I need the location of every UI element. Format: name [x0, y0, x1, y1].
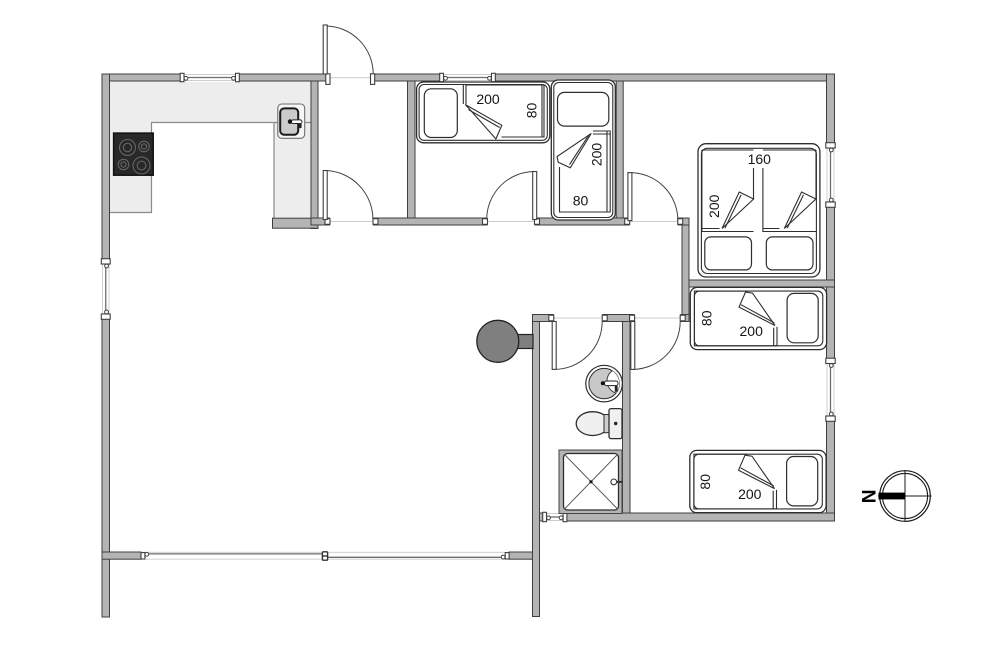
- svg-text:80: 80: [523, 103, 539, 119]
- svg-text:200: 200: [706, 194, 722, 218]
- svg-text:80: 80: [573, 193, 589, 209]
- svg-text:200: 200: [588, 143, 604, 167]
- svg-text:80: 80: [697, 474, 713, 490]
- svg-text:200: 200: [476, 91, 500, 107]
- svg-text:200: 200: [740, 323, 764, 339]
- svg-text:160: 160: [748, 151, 772, 167]
- svg-text:200: 200: [738, 486, 762, 502]
- svg-text:N: N: [857, 489, 878, 503]
- svg-text:80: 80: [698, 310, 714, 326]
